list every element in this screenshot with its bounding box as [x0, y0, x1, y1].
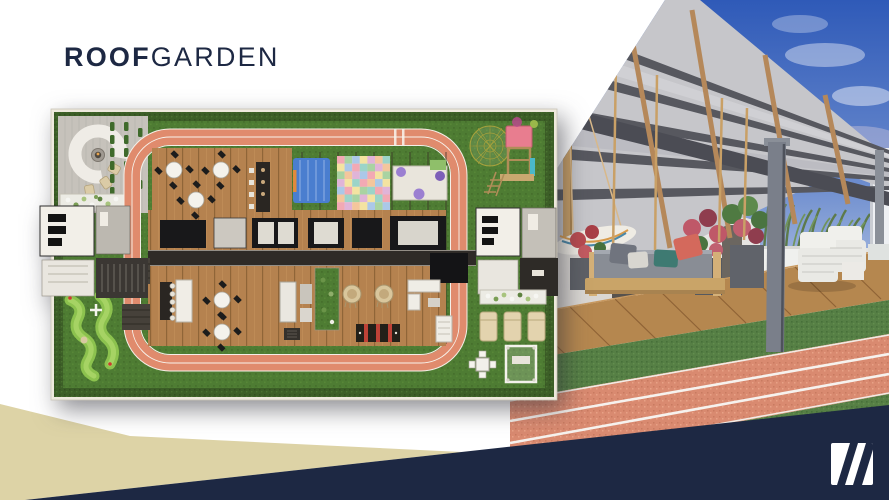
sun-loungers	[480, 312, 545, 341]
garden-pergola	[506, 346, 536, 382]
kids-play-mat	[337, 156, 390, 210]
page-title: ROOFGARDEN	[64, 42, 280, 73]
service-cores-right	[476, 208, 558, 296]
flower-bed-right	[480, 290, 546, 304]
slide: ROOFGARDEN	[0, 0, 889, 500]
kids-play-bench	[393, 160, 447, 200]
brand-logo-mark	[831, 443, 873, 485]
floor-plan-art	[38, 108, 570, 404]
deck-garden-pocket	[315, 268, 339, 330]
game-table	[356, 324, 400, 342]
floor-plan-image	[38, 108, 570, 404]
geodesic-dome	[470, 126, 510, 166]
title-roof: ROOF	[64, 42, 151, 72]
central-corridor	[148, 250, 476, 266]
logo-double-slash-icon	[831, 443, 873, 485]
title-garden: GARDEN	[151, 42, 280, 72]
bar-counter	[160, 280, 192, 322]
